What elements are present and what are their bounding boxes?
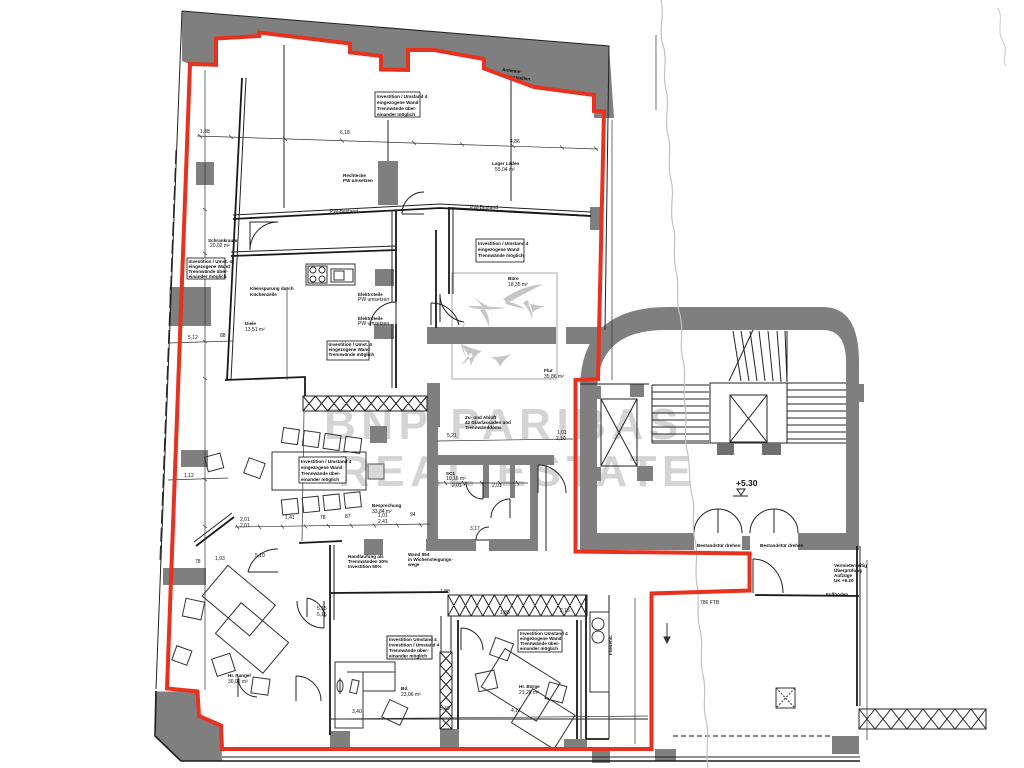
svg-text:Investition / Umstand 4: Investition / Umstand 4 (389, 643, 440, 648)
svg-text:35,86 m²: 35,86 m² (544, 374, 564, 380)
svg-text:Trennwände möglich: Trennwände möglich (478, 253, 524, 258)
svg-text:3,40: 3,40 (352, 709, 362, 715)
svg-text:Flur: Flur (544, 368, 553, 373)
svg-text:eingezogene Wand: eingezogene Wand (301, 465, 343, 470)
svg-text:Hr. Bürge: Hr. Bürge (519, 684, 540, 689)
svg-text:Trennwände über-: Trennwände über- (389, 648, 429, 653)
svg-text:PW-Bestand: PW-Bestand (330, 209, 358, 215)
svg-text:1,93: 1,93 (215, 556, 225, 562)
svg-text:Bestandstür drehen: Bestandstür drehen (760, 543, 804, 548)
svg-text:UK +6.20: UK +6.20 (834, 578, 854, 583)
svg-text:2,15: 2,15 (560, 608, 570, 614)
svg-text:30,02 m²: 30,02 m² (228, 679, 248, 685)
svg-text:einander möglich: einander möglich (520, 646, 558, 651)
svg-text:Kleinspurung durch: Kleinspurung durch (250, 286, 294, 291)
svg-text:PW-Bestand: PW-Bestand (470, 205, 498, 211)
svg-text:eingezogene Wand: eingezogene Wand (377, 100, 419, 105)
svg-text:3,17: 3,17 (470, 526, 480, 532)
svg-text:78: 78 (320, 515, 326, 521)
svg-text:18,35 m²: 18,35 m² (508, 282, 528, 288)
svg-text:5,21: 5,21 (447, 433, 457, 439)
svg-text:Trennwänddoms: Trennwänddoms (465, 425, 502, 430)
svg-text:Trennwände über-: Trennwände über- (301, 471, 341, 476)
svg-text:Investition / Umstand 4: Investition / Umstand 4 (301, 459, 352, 464)
svg-text:Investition Umstand 4: Investition Umstand 4 (389, 637, 437, 642)
svg-text:5,15: 5,15 (317, 612, 327, 618)
svg-text:einander möglich: einander möglich (389, 654, 427, 659)
svg-text:Bestandstür drehen: Bestandstür drehen (697, 543, 741, 548)
svg-text:2,01: 2,01 (452, 483, 462, 489)
svg-text:5,49: 5,49 (440, 706, 450, 712)
svg-text:20,02 m²: 20,02 m² (210, 243, 230, 249)
svg-text:Diele: Diele (245, 321, 256, 326)
svg-text:PW umsetzen: PW umsetzen (358, 297, 389, 303)
svg-text:Lager Läden: Lager Läden (492, 161, 520, 166)
svg-text:2,01: 2,01 (240, 523, 250, 529)
svg-text:1,12: 1,12 (184, 473, 194, 479)
svg-text:1,88: 1,88 (440, 589, 450, 595)
svg-text:Büro: Büro (508, 276, 519, 281)
svg-text:94: 94 (410, 512, 416, 518)
svg-text:PW umsetzen: PW umsetzen (358, 321, 389, 327)
svg-text:Hr. Rangel: Hr. Rangel (228, 673, 251, 678)
svg-text:einander möglich: einander möglich (377, 112, 415, 117)
svg-text:Fußboden: Fußboden (826, 592, 848, 597)
svg-text:88: 88 (220, 333, 226, 339)
svg-text:Küchenzeile: Küchenzeile (250, 292, 277, 297)
svg-text:4,86: 4,86 (510, 139, 520, 145)
svg-text:Investition / Umstand 4: Investition / Umstand 4 (377, 94, 428, 99)
svg-text:Trennwände möglich: Trennwände möglich (329, 352, 375, 357)
svg-text:eingezogene Wand: eingezogene Wand (478, 247, 520, 252)
svg-text:786 FTB: 786 FTB (700, 600, 720, 606)
svg-text:Bd.: Bd. (401, 686, 408, 691)
svg-text:21,28 m²: 21,28 m² (519, 690, 539, 696)
svg-text:2,10: 2,10 (556, 436, 566, 442)
svg-text:23,06 m²: 23,06 m² (401, 692, 421, 698)
svg-text:1,88: 1,88 (500, 610, 510, 616)
svg-text:4,17: 4,17 (511, 708, 521, 714)
svg-text:einander möglich: einander möglich (301, 477, 339, 482)
svg-text:78: 78 (195, 559, 201, 565)
svg-text:10,16 m²: 10,16 m² (446, 476, 466, 482)
svg-text:1,41: 1,41 (285, 515, 295, 521)
svg-text:5,12: 5,12 (188, 335, 198, 341)
svg-text:PW umsetzen: PW umsetzen (343, 178, 373, 183)
svg-text:Investition 50%: Investition 50% (348, 564, 381, 569)
svg-text:87: 87 (345, 514, 351, 520)
svg-text:55,04 m²: 55,04 m² (495, 167, 515, 173)
svg-text:5,10: 5,10 (255, 553, 265, 559)
svg-text:1,88: 1,88 (200, 129, 210, 135)
svg-text:13,51 m²: 13,51 m² (245, 327, 265, 333)
svg-text:Investition / Umstand 4: Investition / Umstand 4 (478, 241, 529, 246)
svg-text:Trennwände über-: Trennwände über- (377, 106, 417, 111)
svg-text:6,18: 6,18 (340, 130, 350, 136)
svg-text:wege: wege (407, 562, 420, 567)
svg-text:einander möglich: einander möglich (189, 274, 227, 279)
svg-text:+5.30: +5.30 (736, 478, 758, 488)
svg-text:2,41: 2,41 (378, 519, 388, 525)
svg-text:Besprechung: Besprechung (372, 503, 402, 508)
svg-text:Fliesenb.: Fliesenb. (608, 635, 613, 655)
